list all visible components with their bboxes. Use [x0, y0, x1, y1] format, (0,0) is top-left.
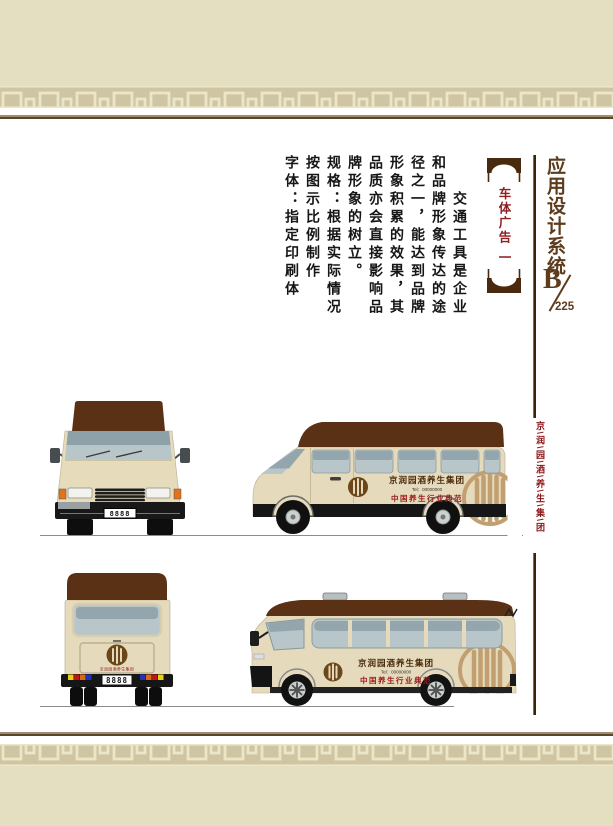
scroll-bracket-top-icon: [487, 158, 521, 182]
van-roof: [298, 422, 504, 447]
right-divider-upper: [533, 155, 536, 418]
company-logo-icon: [107, 645, 128, 666]
van-side-view: 京润园酒养生集团 Tel：00000000 中国养生行业典范: [250, 417, 522, 539]
bottom-rule: [0, 732, 613, 736]
company-side-note: 京\润\园\酒\养\生\集\团: [527, 421, 547, 555]
section-label-number: 一: [495, 251, 514, 264]
section-index: B 225: [541, 268, 585, 322]
body-paragraph-1: 交通工具是企业和品牌形象传达的途径之一，能达到品牌形象积累的效果，其品质亦会直接…: [344, 155, 470, 321]
greek-key-border-top: [0, 86, 613, 108]
front-wheels: [67, 519, 173, 535]
page-title: 应用设计系统: [541, 156, 568, 276]
rear-wheels: [70, 687, 162, 706]
company-name-text: 京润园酒养生集团: [389, 475, 465, 485]
body-text: 交通工具是企业和品牌形象传达的途径之一，能达到品牌形象积累的效果，其品质亦会直接…: [276, 155, 470, 321]
slogan-text: 中国养生行业典范: [391, 493, 463, 503]
right-divider-lower: [533, 553, 536, 715]
svg-text:8888: 8888: [106, 676, 128, 685]
roof-vents: [323, 593, 467, 600]
page-number: 225: [555, 301, 574, 313]
rear-license-plate: 8888: [102, 675, 132, 685]
section-label-title: 车体广告: [495, 187, 514, 245]
van-roof: [72, 401, 165, 431]
company-logo-icon: [324, 663, 343, 682]
van-front-view: 8888: [48, 396, 192, 536]
greek-key-border-bottom: [0, 744, 613, 766]
tel-text: Tel：00000000: [412, 487, 443, 492]
company-logo-icon: [348, 477, 368, 497]
rear-caption-text: 京润园酒养生集团: [100, 667, 134, 672]
body-paragraph-3: 字体：指定印刷体: [281, 155, 302, 321]
windshield: [65, 431, 172, 459]
van-roof: [67, 573, 167, 600]
window-band: [312, 619, 502, 648]
top-rule: [0, 115, 613, 119]
headlight: [254, 654, 264, 659]
bus-roof: [266, 600, 514, 616]
coach-side-view: 京润园酒养生集团 Tel：00000000 中国养生行业典范: [244, 592, 524, 712]
manual-page: 应用设计系统 B 225 京\润\园\酒\养\生\集\团 车体广告 一 交通工具…: [0, 0, 613, 826]
rear-bumper-piece: [510, 674, 516, 686]
scroll-bracket-bottom-icon: [487, 269, 521, 293]
slogan-text: 中国养生行业典范: [360, 675, 432, 685]
side-windows: [312, 450, 500, 473]
bottom-band: [0, 744, 613, 826]
rear-window: [73, 604, 161, 636]
section-label: 车体广告 一: [485, 158, 523, 293]
tel-text: Tel：00000000: [381, 670, 412, 675]
front-bumper: [250, 666, 272, 687]
front-license-plate: 8888: [104, 509, 136, 519]
top-band: [0, 0, 613, 108]
svg-text:8888: 8888: [110, 510, 131, 518]
company-name-text: 京润园酒养生集团: [358, 658, 434, 668]
door-mark: [113, 640, 121, 642]
body-paragraph-2: 规格：根据实际情况按图示比例制作: [302, 155, 344, 321]
door-handle: [330, 477, 341, 481]
van-rear-view: 京润园酒养生集团 8888: [56, 566, 176, 708]
